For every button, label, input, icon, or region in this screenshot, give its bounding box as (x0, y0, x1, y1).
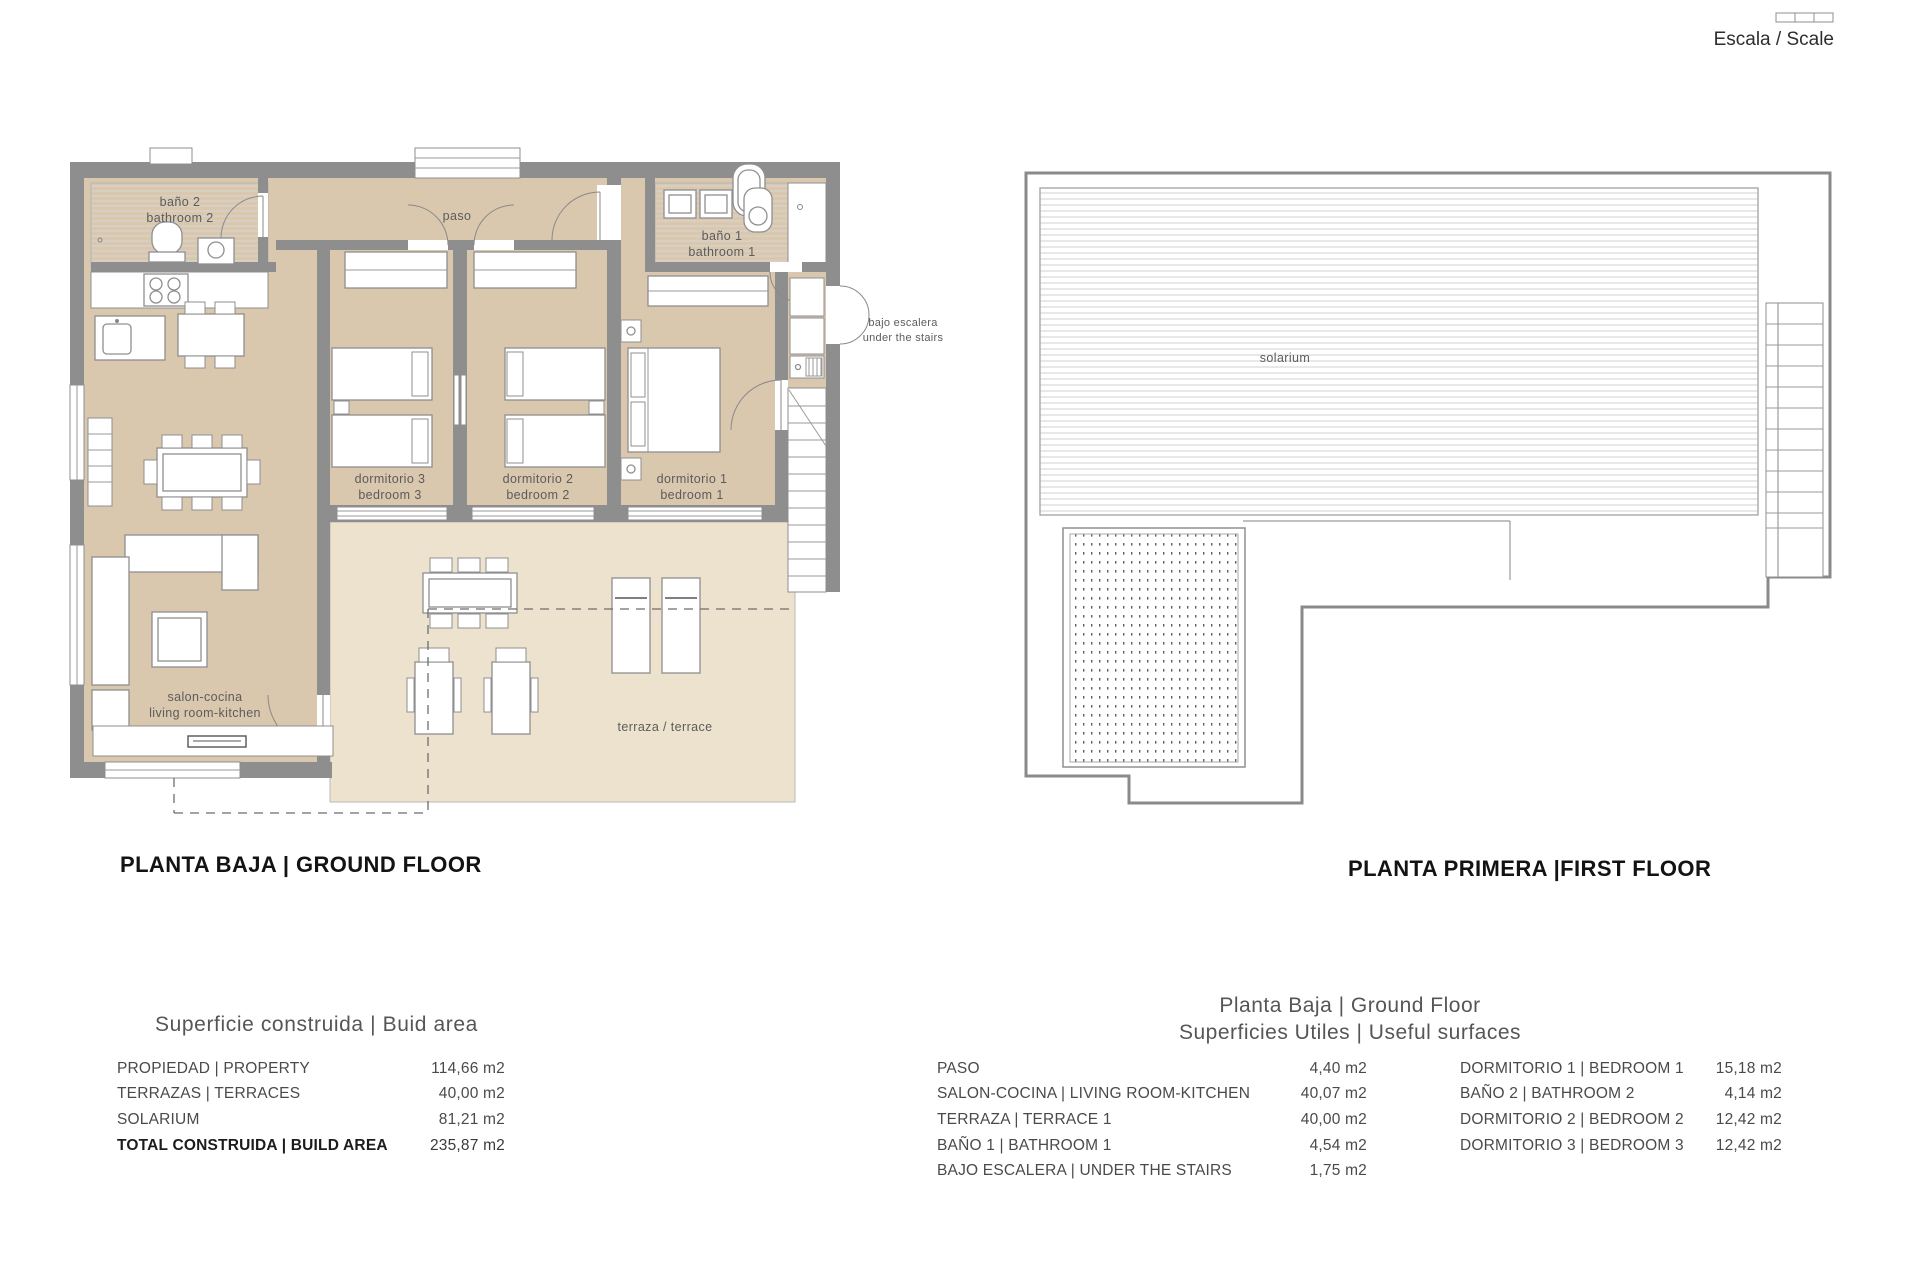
useful-table-title-line2: Superficies Utiles | Useful surfaces (1100, 1019, 1600, 1046)
row-value: 40,00 m2 (439, 1085, 505, 1103)
pergola-dotted-area (1063, 528, 1245, 767)
row-label: TERRAZA | TERRACE 1 (937, 1111, 1112, 1129)
label-bano2-es: baño 2 (160, 195, 201, 209)
terrace-area (330, 522, 795, 802)
table-row: BAJO ESCALERA | UNDER THE STAIRS 1,75 m2 (937, 1158, 1367, 1184)
first-floor-title: PLANTA PRIMERA |FIRST FLOOR (1348, 856, 1711, 882)
label-bano1-en: bathroom 1 (688, 245, 755, 259)
useful-table-header: Planta Baja | Ground Floor Superficies U… (1100, 992, 1600, 1046)
scale-bar: Escala / Scale (1714, 13, 1834, 50)
ground-floor-plan: baño 2 bathroom 2 paso baño 1 bathroom 1… (70, 148, 944, 813)
row-value: 4,54 m2 (1310, 1137, 1367, 1155)
row-label: DORMITORIO 3 | BEDROOM 3 (1460, 1137, 1684, 1155)
label-bano1-es: baño 1 (702, 229, 743, 243)
build-area-table: PROPIEDAD | PROPERTY 114,66 m2 TERRAZAS … (117, 1056, 505, 1158)
table-row: BAÑO 2 | BATHROOM 2 4,14 m2 (1460, 1082, 1782, 1108)
label-dorm3-es: dormitorio 3 (355, 472, 426, 486)
label-solarium: solarium (1260, 351, 1310, 365)
table-row: BAÑO 1 | BATHROOM 1 4,54 m2 (937, 1133, 1367, 1159)
table-row: PASO 4,40 m2 (937, 1056, 1367, 1082)
row-label: TOTAL CONSTRUIDA | BUILD AREA (117, 1137, 388, 1155)
label-paso: paso (443, 209, 472, 223)
row-value: 1,75 m2 (1310, 1162, 1367, 1180)
table-row: PROPIEDAD | PROPERTY 114,66 m2 (117, 1056, 505, 1082)
row-value: 114,66 m2 (431, 1060, 505, 1078)
row-label: BAÑO 2 | BATHROOM 2 (1460, 1085, 1635, 1103)
table-row: SALON-COCINA | LIVING ROOM-KITCHEN 40,07… (937, 1082, 1367, 1108)
table-row: SOLARIUM 81,21 m2 (117, 1107, 505, 1133)
table-row: DORMITORIO 1 | BEDROOM 1 15,18 m2 (1460, 1056, 1782, 1082)
hall-and-stairs (788, 278, 826, 592)
label-salon-es: salon-cocina (168, 690, 243, 704)
row-label: DORMITORIO 1 | BEDROOM 1 (1460, 1060, 1684, 1078)
row-value: 12,42 m2 (1716, 1111, 1782, 1129)
label-dorm2-en: bedroom 2 (506, 488, 569, 502)
label-dorm1-es: dormitorio 1 (657, 472, 728, 486)
label-bano2-en: bathroom 2 (146, 211, 213, 225)
useful-table-right-column: DORMITORIO 1 | BEDROOM 1 15,18 m2 BAÑO 2… (1460, 1056, 1782, 1158)
row-value: 235,87 m2 (430, 1137, 505, 1155)
row-label: DORMITORIO 2 | BEDROOM 2 (1460, 1111, 1684, 1129)
row-label: SALON-COCINA | LIVING ROOM-KITCHEN (937, 1085, 1250, 1103)
row-label: TERRAZAS | TERRACES (117, 1085, 300, 1103)
first-floor-plan: solarium (1026, 173, 1830, 803)
label-terraza: terraza / terrace (617, 720, 712, 734)
label-dorm1-en: bedroom 1 (660, 488, 723, 502)
table-row: DORMITORIO 3 | BEDROOM 3 12,42 m2 (1460, 1133, 1782, 1159)
row-label: BAJO ESCALERA | UNDER THE STAIRS (937, 1162, 1232, 1180)
table-row: TERRAZAS | TERRACES 40,00 m2 (117, 1082, 505, 1108)
solarium-deck (1040, 188, 1758, 515)
row-label: PASO (937, 1060, 980, 1078)
scale-label: Escala / Scale (1714, 29, 1834, 50)
label-salon-en: living room-kitchen (149, 706, 261, 720)
row-value: 40,07 m2 (1301, 1085, 1367, 1103)
row-value: 4,14 m2 (1725, 1085, 1782, 1103)
useful-table-left-column: PASO 4,40 m2 SALON-COCINA | LIVING ROOM-… (937, 1056, 1367, 1184)
row-value: 81,21 m2 (439, 1111, 505, 1129)
row-label: PROPIEDAD | PROPERTY (117, 1060, 310, 1078)
label-dorm2-es: dormitorio 2 (503, 472, 574, 486)
table-row: DORMITORIO 2 | BEDROOM 2 12,42 m2 (1460, 1107, 1782, 1133)
row-value: 4,40 m2 (1310, 1060, 1367, 1078)
row-label: SOLARIUM (117, 1111, 200, 1129)
label-bajo-escalera-es: bajo escalera (868, 317, 938, 329)
table-row: TERRAZA | TERRACE 1 40,00 m2 (937, 1107, 1367, 1133)
row-value: 15,18 m2 (1716, 1060, 1782, 1078)
build-area-table-title: Superficie construida | Buid area (155, 1013, 478, 1037)
table-row-total: TOTAL CONSTRUIDA | BUILD AREA 235,87 m2 (117, 1133, 505, 1159)
label-dorm3-en: bedroom 3 (358, 488, 421, 502)
ground-floor-stairs (788, 388, 826, 592)
useful-table-title-line1: Planta Baja | Ground Floor (1100, 992, 1600, 1019)
shower (788, 183, 826, 267)
first-floor-stairs (1766, 303, 1823, 577)
row-label: BAÑO 1 | BATHROOM 1 (937, 1137, 1112, 1155)
label-bajo-escalera-en: under the stairs (863, 332, 944, 344)
row-value: 12,42 m2 (1716, 1137, 1782, 1155)
ground-floor-title: PLANTA BAJA | GROUND FLOOR (120, 852, 482, 878)
row-value: 40,00 m2 (1301, 1111, 1367, 1129)
